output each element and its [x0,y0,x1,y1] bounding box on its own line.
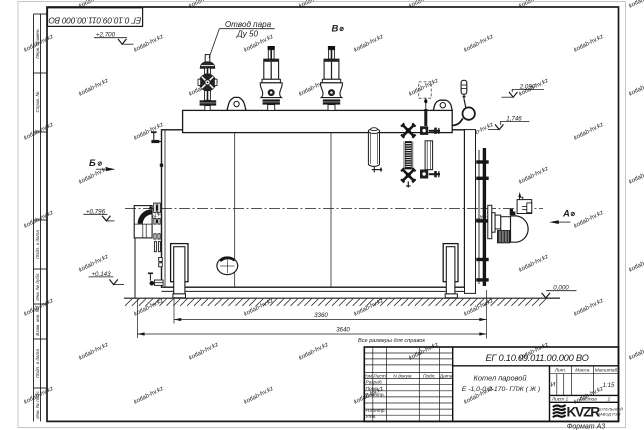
svg-text:kotlab-hv.kz: kotlab-hv.kz [628,165,644,186]
svg-text:Листов: Листов [578,397,597,403]
svg-text:Справ. №: Справ. № [35,92,40,113]
svg-text:Инв. № дубл.: Инв. № дубл. [35,272,40,300]
svg-text:kotlab-hv.kz: kotlab-hv.kz [518,165,550,186]
svg-text:Перв. примен.: Перв. примен. [35,28,40,59]
svg-text:Подп. и дата: Подп. и дата [35,349,40,378]
svg-text:kotlab-hv.kz: kotlab-hv.kz [573,297,605,318]
svg-text:KVZR: KVZR [567,405,601,420]
svg-text:Разраб.: Разраб. [366,380,383,386]
svg-text:В: В [332,24,339,35]
svg-text:Ду 50: Ду 50 [236,30,259,39]
svg-text:1:15: 1:15 [603,383,615,389]
svg-text:Т.контр.: Т.контр. [366,392,385,398]
svg-text:+2,700: +2,700 [96,31,116,38]
svg-text:3640: 3640 [336,327,350,334]
svg-text:kotlab-hv.kz: kotlab-hv.kz [188,341,220,362]
svg-text:kotlab-hv.kz: kotlab-hv.kz [628,341,644,362]
svg-text:Пров.: Пров. [366,386,379,392]
svg-text:kotlab-hv.kz: kotlab-hv.kz [628,77,644,98]
svg-text:kotlab-hv.kz: kotlab-hv.kz [23,121,55,142]
svg-text:Масштаб: Масштаб [595,368,618,374]
svg-text:ЕГ 0.10.09.011.00.000 ВО: ЕГ 0.10.09.011.00.000 ВО [485,353,588,363]
svg-text:kotlab-hv.kz: kotlab-hv.kz [78,341,110,362]
svg-text:kotlab-hv.kz: kotlab-hv.kz [573,209,605,230]
svg-text:kotlab-hv.kz: kotlab-hv.kz [628,253,644,274]
svg-text:Масса: Масса [575,368,590,374]
svg-text:kotlab-hv.kz: kotlab-hv.kz [628,0,644,10]
svg-text:Подп. и дата: Подп. и дата [35,230,40,259]
svg-text:Н.контр.: Н.контр. [366,408,386,414]
svg-text:kotlab-hv.kz: kotlab-hv.kz [78,77,110,98]
svg-text:kotlab-hv.kz: kotlab-hv.kz [518,253,550,274]
svg-text:kotlab-hv.kz: kotlab-hv.kz [133,121,165,142]
svg-text:Формат А3: Формат А3 [567,423,605,430]
svg-text:2: 2 [607,397,611,403]
svg-text:Дата: Дата [439,374,453,380]
svg-text:kotlab-hv.kz: kotlab-hv.kz [243,385,275,406]
svg-text:Отвод пара: Отвод пара [225,20,272,29]
svg-text:ЗАВОД РЭП: ЗАВОД РЭП [598,412,621,417]
svg-text:Б: Б [89,158,96,169]
svg-text:Изм.: Изм. [363,374,373,380]
svg-text:Лист 1: Лист 1 [551,397,569,403]
svg-text:kotlab-hv.kz: kotlab-hv.kz [23,209,55,230]
svg-text:ЕГ 0.10.09.011.00.000 ВО: ЕГ 0.10.09.011.00.000 ВО [48,16,141,26]
svg-text:3360: 3360 [314,312,328,319]
svg-text:И: И [551,382,556,389]
svg-text:А: А [562,208,570,219]
svg-text:Котел паровой: Котел паровой [473,374,526,383]
svg-text:Е -1,0-0,9-170- ГЛЖ ( Ж ): Е -1,0-0,9-170- ГЛЖ ( Ж ) [462,386,540,393]
svg-text:Все размеры для справок: Все размеры для справок [358,338,425,344]
svg-text:Лист: Лист [372,374,385,380]
svg-text:kotlab-hv.kz: kotlab-hv.kz [353,33,385,54]
svg-text:kotlab-hv.kz: kotlab-hv.kz [573,121,605,142]
svg-text:Инв. № подл.: Инв. № подл. [35,390,40,419]
svg-text:kotlab-hv.kz: kotlab-hv.kz [133,33,165,54]
svg-text:Подп.: Подп. [423,374,436,380]
svg-text:Утв.: Утв. [366,414,377,420]
svg-text:kotlab-hv.kz: kotlab-hv.kz [133,385,165,406]
svg-text:Взам. инв. №: Взам. инв. № [35,307,40,335]
svg-text:kotlab-hv.kz: kotlab-hv.kz [573,33,605,54]
svg-text:kotlab-hv.kz: kotlab-hv.kz [408,77,440,98]
svg-text:kotlab-hv.kz: kotlab-hv.kz [298,341,330,362]
svg-text:N докум.: N докум. [393,374,412,380]
svg-text:kotlab-hv.kz: kotlab-hv.kz [463,33,495,54]
svg-text:kotlab-hv.kz: kotlab-hv.kz [353,297,385,318]
svg-text:Лит.: Лит. [554,368,566,374]
